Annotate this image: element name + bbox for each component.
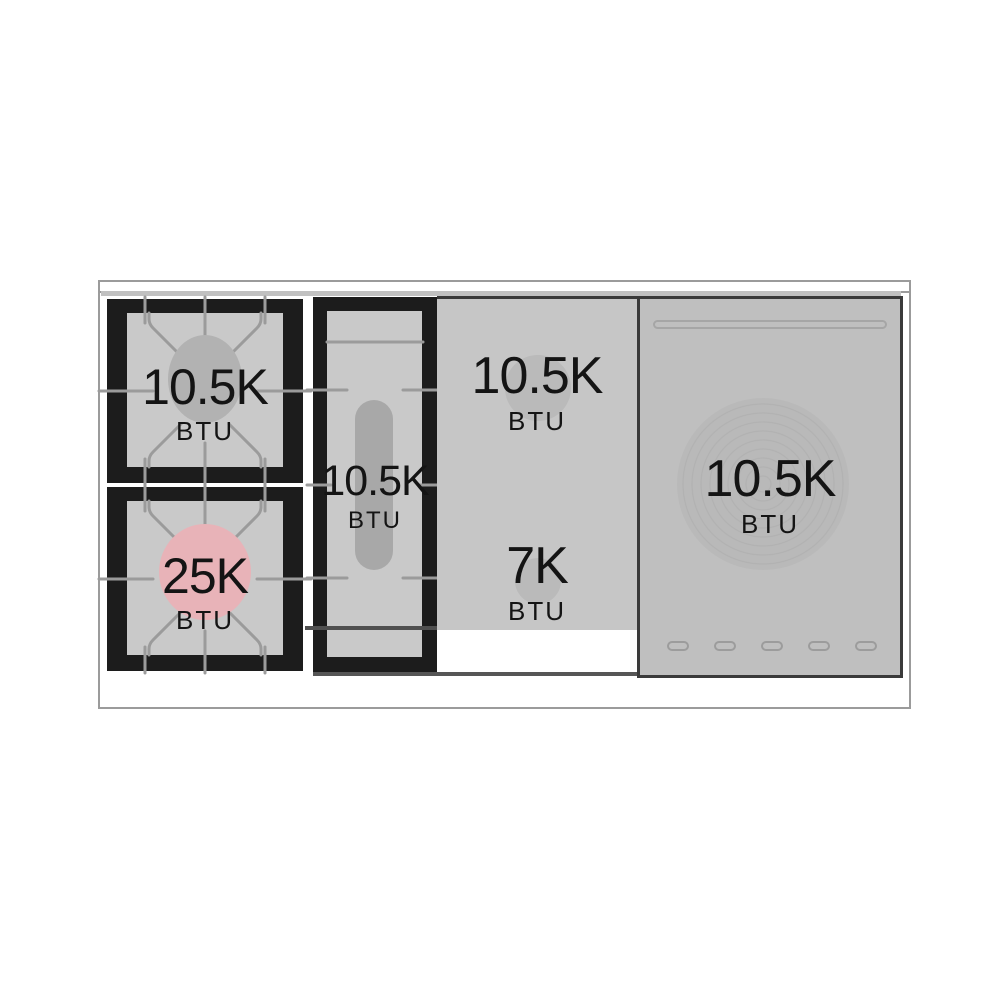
btu-value: 10.5K xyxy=(437,350,637,402)
rangetop-diagram: 10.5K BTU 25K BTU 10.5K BTU 10.5K BTU 7K… xyxy=(0,0,1000,1000)
btu-value: 10.5K xyxy=(107,362,303,412)
btu-unit: BTU xyxy=(313,508,437,534)
vent-slot xyxy=(855,641,877,651)
griddle-front-trim xyxy=(437,630,637,673)
french-top-handle xyxy=(653,320,887,329)
btu-value: 7K xyxy=(437,540,637,592)
btu-value: 10.5K xyxy=(313,460,437,503)
btu-unit: BTU xyxy=(637,510,903,539)
btu-value: 25K xyxy=(107,551,303,601)
vent-slot xyxy=(808,641,830,651)
vent-slot xyxy=(667,641,689,651)
burner-label-left-front: 25K BTU xyxy=(107,551,303,635)
burner-label-center-oval: 10.5K BTU xyxy=(313,460,437,534)
btu-unit: BTU xyxy=(107,417,303,446)
btu-value: 10.5K xyxy=(637,453,903,505)
vent-slot xyxy=(714,641,736,651)
burner-label-griddle-back: 10.5K BTU xyxy=(437,350,637,436)
btu-unit: BTU xyxy=(437,407,637,436)
burner-label-griddle-front: 7K BTU xyxy=(437,540,637,626)
burner-label-left-back: 10.5K BTU xyxy=(107,362,303,446)
btu-unit: BTU xyxy=(107,606,303,635)
btu-unit: BTU xyxy=(437,597,637,626)
vent-slot xyxy=(761,641,783,651)
burner-label-french-top: 10.5K BTU xyxy=(637,453,903,539)
